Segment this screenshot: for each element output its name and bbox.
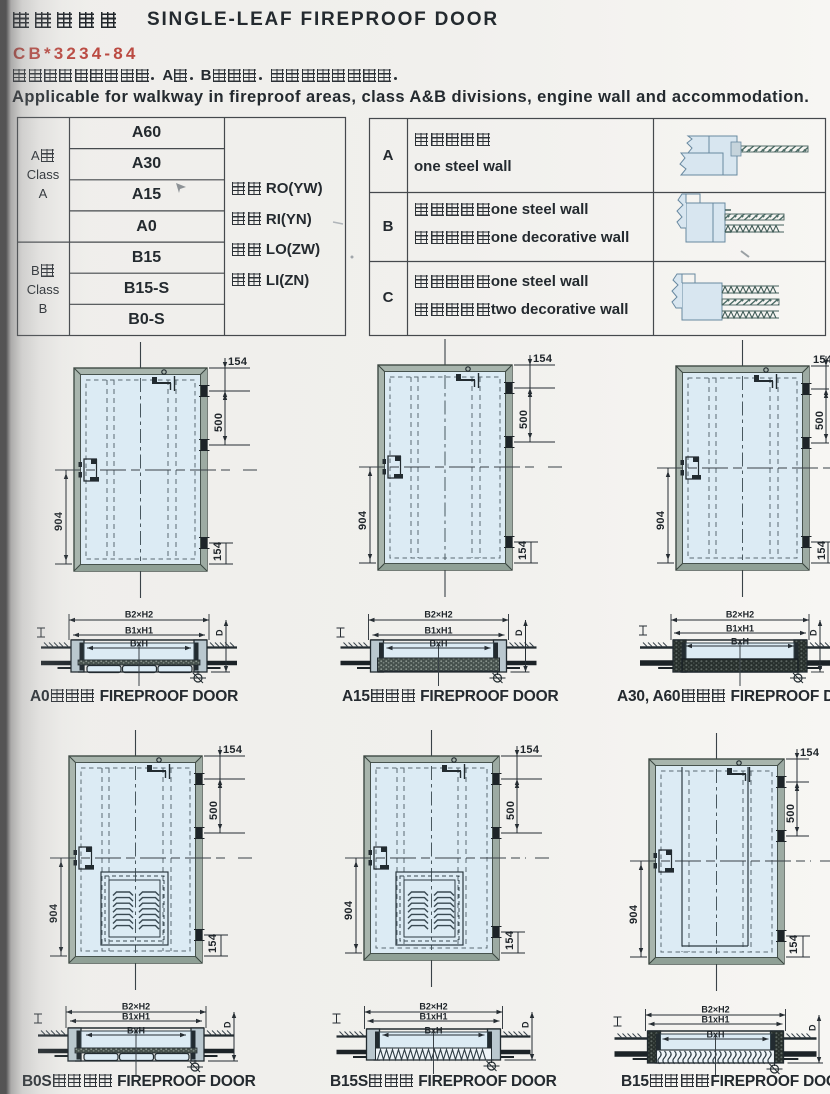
svg-text:BxH: BxH xyxy=(424,1026,442,1036)
svg-text:154: 154 xyxy=(800,747,820,759)
svg-text:D: D xyxy=(809,629,819,636)
svg-text:904: 904 xyxy=(48,903,60,923)
svg-text:154: 154 xyxy=(813,354,830,366)
svg-text:154: 154 xyxy=(212,541,224,561)
svg-text:B1xH1: B1xH1 xyxy=(424,626,452,636)
svg-text:D: D xyxy=(521,1021,531,1028)
svg-text:D: D xyxy=(808,1024,818,1031)
svg-text:B2×H2: B2×H2 xyxy=(424,610,452,620)
svg-text:B1xH1: B1xH1 xyxy=(701,1015,729,1025)
svg-text:500: 500 xyxy=(208,801,220,820)
svg-text:154: 154 xyxy=(533,353,553,365)
svg-text:B1xH1: B1xH1 xyxy=(125,626,153,636)
svg-text:B2×H2: B2×H2 xyxy=(419,1002,447,1012)
svg-text:D: D xyxy=(514,629,524,636)
svg-text:BxH: BxH xyxy=(130,639,148,649)
svg-text:154: 154 xyxy=(504,930,516,950)
svg-text:500: 500 xyxy=(505,801,517,820)
svg-text:B1xH1: B1xH1 xyxy=(122,1012,150,1022)
svg-text:154: 154 xyxy=(816,540,828,560)
svg-text:BxH: BxH xyxy=(706,1030,724,1040)
svg-text:500: 500 xyxy=(785,804,797,823)
svg-text:154: 154 xyxy=(788,934,800,954)
svg-text:904: 904 xyxy=(655,510,667,530)
svg-text:500: 500 xyxy=(814,411,826,430)
svg-text:B2×H2: B2×H2 xyxy=(701,1005,729,1015)
svg-text:D: D xyxy=(223,1021,233,1028)
svg-text:154: 154 xyxy=(223,744,243,756)
svg-text:D: D xyxy=(215,629,225,636)
svg-text:B2×H2: B2×H2 xyxy=(726,610,754,620)
svg-text:154: 154 xyxy=(228,356,248,368)
svg-text:B1xH1: B1xH1 xyxy=(419,1012,447,1022)
svg-text:154: 154 xyxy=(207,933,219,953)
svg-text:BxH: BxH xyxy=(429,639,447,649)
svg-text:154: 154 xyxy=(517,540,529,560)
svg-text:500: 500 xyxy=(518,410,530,429)
svg-text:B1xH1: B1xH1 xyxy=(726,624,754,634)
svg-text:500: 500 xyxy=(213,413,225,432)
svg-text:904: 904 xyxy=(343,900,355,920)
svg-text:BxH: BxH xyxy=(731,637,749,647)
svg-text:904: 904 xyxy=(357,510,369,530)
svg-text:904: 904 xyxy=(628,904,640,924)
svg-text:BxH: BxH xyxy=(127,1026,145,1036)
svg-text:904: 904 xyxy=(53,511,65,531)
svg-text:154: 154 xyxy=(520,744,540,756)
svg-text:B2×H2: B2×H2 xyxy=(122,1002,150,1012)
svg-text:B2×H2: B2×H2 xyxy=(125,610,153,620)
